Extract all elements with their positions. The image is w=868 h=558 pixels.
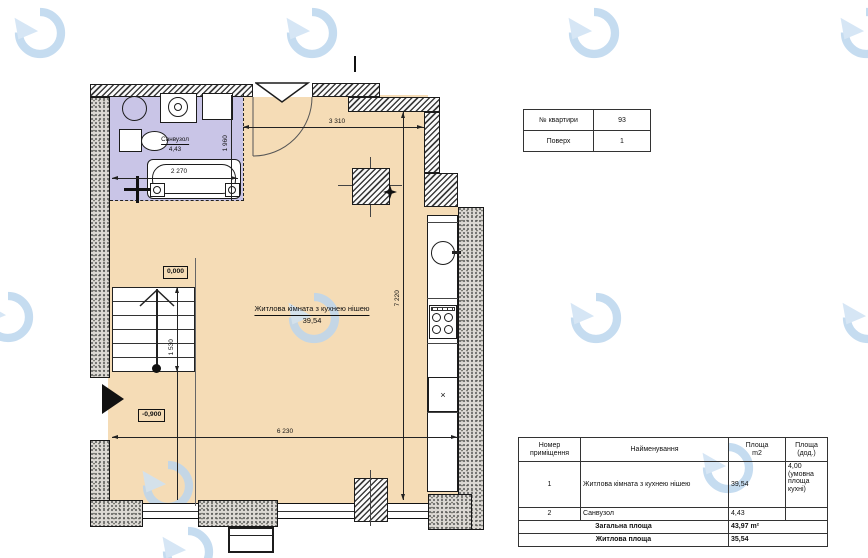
dim-line-bath-width [112,178,238,179]
room-number: 2 [519,508,581,521]
watermark-logo-icon [566,5,622,61]
axis-line [370,470,371,526]
col-header-area: Площа m2 [729,438,786,462]
column-pilaster [354,478,388,522]
watermark-logo-icon [0,289,36,345]
stove-burner [432,325,441,334]
table-row: № квартири 93 [524,110,651,131]
info-value: 93 [594,110,651,131]
room-name: Житлова кімната з кухнею нішею [581,462,729,508]
table-header-row: Номер приміщення Найменування Площа m2 П… [519,438,828,462]
dim-arrow [112,435,118,439]
wall-right-elbow [424,173,458,207]
total-label: Житлова площа [519,534,729,547]
dim-arrow [112,176,118,180]
foundation-line [230,535,272,536]
room-area-value: 39,54 [303,317,322,326]
stove-knob-strip [431,307,455,311]
wall-bottom-pier [198,500,278,527]
dim-text-stairs: 1 530 [169,339,176,355]
dim-arrow [417,125,423,129]
dim-text-bath-width: 2 270 [171,169,187,176]
wall-bottom-pier [428,494,472,530]
wall-top [312,83,380,97]
watermark-logo-icon [840,290,868,346]
total-label: Загальна площа [519,521,729,534]
dim-arrow [231,176,237,180]
total-row: Житлова площа 35,54 [519,534,828,547]
room-area-extra: 4,00 (умовна площа кухні) [786,462,828,508]
window [143,503,198,519]
window [278,503,358,519]
sink-icon [202,93,233,120]
watermark-logo-icon [160,524,216,558]
foundation-protrusion [228,527,274,553]
col-header-room-number: Номер приміщення [519,438,581,462]
wall-left [90,97,110,378]
room-area: 4,43 [729,508,786,521]
wall-top-step [348,97,440,112]
dim-text-bottom: 6 230 [277,429,293,436]
dim-arrow [401,494,405,500]
wall-right-upper [424,112,440,173]
table-row: Поверх 1 [524,131,651,152]
level-mark-minus: -0,900 [138,409,165,422]
stove-burner [444,313,453,322]
dim-line-bath-height [231,95,232,200]
dim-text-top: 3 310 [329,119,345,126]
bathtub-faucet-knob [153,186,161,194]
apartment-info-table: № квартири 93 Поверх 1 [523,109,651,152]
room-number: 1 [519,462,581,508]
col-header-area-extra: Площа (дод.) [786,438,828,462]
dim-arrow [243,125,249,129]
room-area: 39,54 [729,462,786,508]
dim-text-right: 7 220 [395,290,402,306]
bathroom-label: Санвузол [161,136,189,145]
blueprint-canvas: Санвузол 4,43 2 270 1 960 0,000 -0,900 Ж… [0,0,868,558]
bathroom-dashed-edge [110,200,244,201]
watermark-logo-icon [284,5,340,61]
info-label: № квартири [524,110,594,131]
entry-direction-triangle-icon [101,383,125,415]
stairs-direction-arrow [138,288,176,308]
watermark-logo-icon [568,290,624,346]
room-area-extra [786,508,828,521]
dim-line-stairs [177,287,178,500]
dim-text-bath-height: 1 960 [223,135,230,151]
axis-star-marker [383,185,397,199]
axis-cross-marker [136,176,139,203]
counter-divider [427,412,458,413]
room-label: Житлова кімната з кухнею нішею [254,305,369,316]
door-swing-arc [252,96,316,160]
dim-arrow [175,366,179,372]
wall-bottom-pier [90,500,143,527]
axis-line [195,258,196,506]
toilet-cistern [119,129,142,152]
dim-arrow [175,287,179,293]
axis-mark [354,56,356,72]
area-summary-table: Номер приміщення Найменування Площа m2 П… [518,437,828,547]
dim-arrow [401,112,405,118]
dim-line-bottom [112,437,458,438]
cabinet-x-mark: × [428,377,458,412]
total-value: 43,97 m² [729,521,828,534]
info-label: Поверх [524,131,594,152]
bathtub-faucet-knob [228,186,236,194]
dim-arrow [451,435,457,439]
stove-burner [444,325,453,334]
total-row: Загальна площа 43,97 m² [519,521,828,534]
basin-icon [122,96,147,121]
room-name: Санвузол [581,508,729,521]
washing-machine-drum-center [174,103,182,111]
total-value: 35,54 [729,534,828,547]
dim-line-right [403,112,404,500]
counter-divider [427,222,458,223]
window [388,503,430,519]
counter-divider [427,298,458,299]
stairs-walk-line-start-dot [152,364,161,373]
table-row: 2 Санвузол 4,43 [519,508,828,521]
level-mark-zero: 0,000 [163,266,188,279]
wall-right [458,207,484,530]
info-value: 1 [594,131,651,152]
bathroom-dashed-edge [243,93,244,201]
stove-burner [432,313,441,322]
watermark-logo-icon [12,5,68,61]
counter-divider [427,343,458,344]
table-row: 1 Житлова кімната з кухнею нішею 39,54 4… [519,462,828,508]
col-header-name: Найменування [581,438,729,462]
bathroom-area-value: 4,43 [169,146,181,153]
dim-line-top [243,127,424,128]
watermark-logo-icon [838,5,868,61]
kitchen-sink-tap [452,251,461,254]
